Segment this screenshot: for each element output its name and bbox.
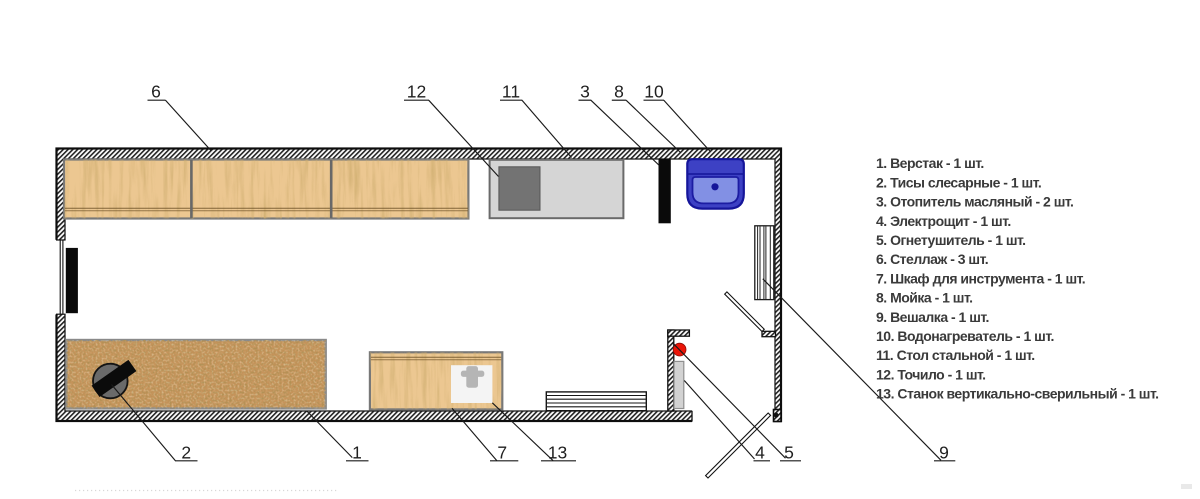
svg-text:2. Тисы слесарные - 1 шт.: 2. Тисы слесарные - 1 шт.: [876, 174, 1041, 190]
svg-text:2: 2: [181, 443, 191, 463]
svg-text:3: 3: [580, 82, 590, 102]
svg-text:6: 6: [151, 82, 161, 102]
svg-text:1. Верстак - 1 шт.: 1. Верстак - 1 шт.: [876, 155, 984, 171]
svg-text:11: 11: [502, 82, 520, 102]
svg-text:4. Электрощит - 1 шт.: 4. Электрощит - 1 шт.: [876, 213, 1011, 229]
svg-text:9. Вешалка - 1 шт.: 9. Вешалка - 1 шт.: [876, 309, 989, 325]
svg-text:10: 10: [644, 82, 664, 102]
svg-text:12. Точило - 1 шт.: 12. Точило - 1 шт.: [876, 366, 986, 382]
svg-text:7: 7: [497, 443, 507, 463]
svg-text:4: 4: [755, 443, 765, 463]
svg-text:10. Водонагреватель - 1 шт.: 10. Водонагреватель - 1 шт.: [876, 328, 1054, 344]
svg-text:6. Стеллаж - 3 шт.: 6. Стеллаж - 3 шт.: [876, 251, 988, 267]
svg-text:1: 1: [352, 443, 362, 463]
svg-text:5: 5: [784, 443, 794, 463]
svg-text:5. Огнетушитель - 1 шт.: 5. Огнетушитель - 1 шт.: [876, 232, 1026, 248]
svg-text:13. Станок вертикально-свериль: 13. Станок вертикально-сверильный - 1 шт…: [876, 386, 1158, 402]
svg-text:11. Стол стальной - 1 шт.: 11. Стол стальной - 1 шт.: [876, 347, 1035, 363]
svg-text:7. Шкаф для инструмента - 1 шт: 7. Шкаф для инструмента - 1 шт.: [876, 270, 1085, 286]
svg-text:8. Мойка - 1 шт.: 8. Мойка - 1 шт.: [876, 290, 972, 306]
svg-text:13: 13: [548, 443, 567, 463]
svg-text:3. Отопитель масляный - 2 шт.: 3. Отопитель масляный - 2 шт.: [876, 194, 1073, 210]
svg-text:12: 12: [407, 82, 426, 102]
svg-text:8: 8: [614, 82, 624, 102]
svg-text:9: 9: [939, 443, 949, 463]
